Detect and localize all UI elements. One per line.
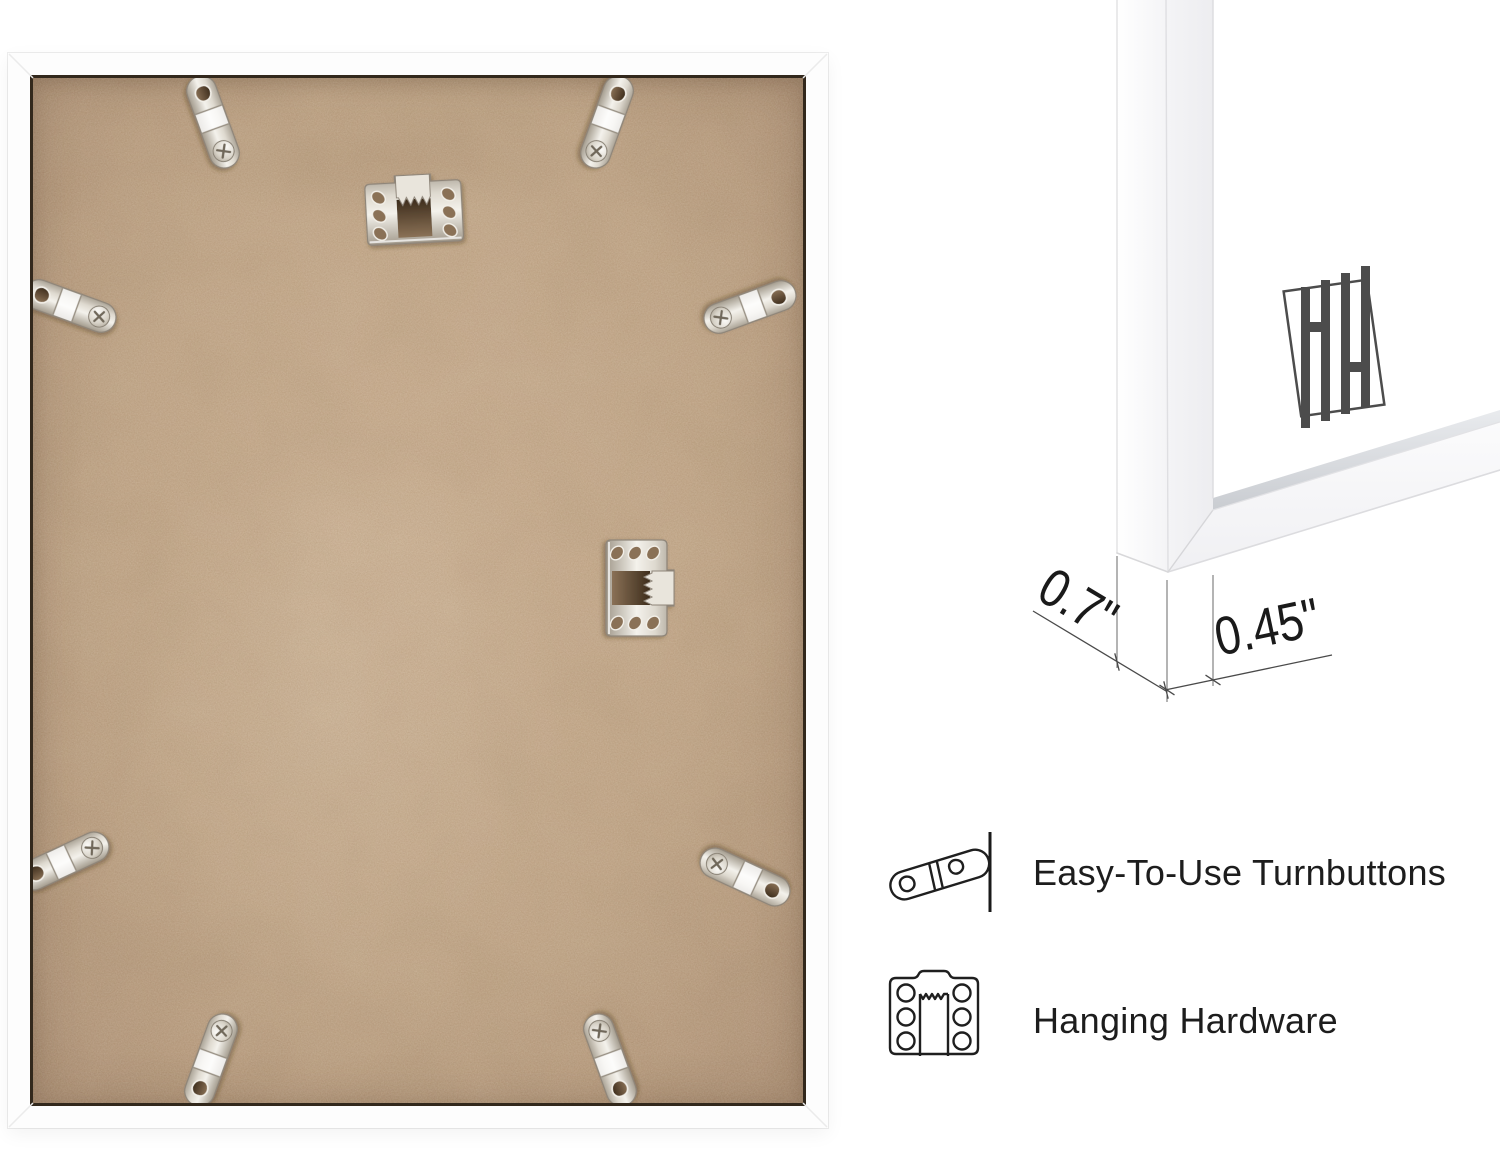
turnbutton-bottom-right xyxy=(579,1010,640,1110)
hanging-hardware-layer xyxy=(8,53,828,1128)
feature-label-turnbuttons: Easy-To-Use Turnbuttons xyxy=(1033,855,1446,891)
face-width-dimension-label: 0.45" xyxy=(1209,587,1325,668)
turnbutton-top-right xyxy=(576,72,637,172)
turnbutton-bottom-left xyxy=(180,1010,241,1110)
frame-corner-render xyxy=(1117,0,1500,572)
sawtooth-hanger-top xyxy=(364,173,463,246)
sawtooth-hanger-icon xyxy=(886,968,982,1060)
turnbutton-left-lower xyxy=(14,827,114,895)
turnbutton-top-left xyxy=(182,72,243,172)
sawtooth-hanger-middle xyxy=(606,540,674,636)
turnbutton-right-lower xyxy=(695,843,795,911)
depth-dimension-label: 0.7" xyxy=(1028,556,1128,649)
feature-label-hanging-hardware: Hanging Hardware xyxy=(1033,1003,1338,1039)
turnbutton-right-upper xyxy=(700,276,800,337)
turnbutton-left-upper xyxy=(20,275,120,336)
turnbutton-icon xyxy=(885,826,997,918)
frame-back-photo xyxy=(8,53,828,1128)
frame-corner-closeup: 0.7" 0.45" xyxy=(1000,0,1500,760)
